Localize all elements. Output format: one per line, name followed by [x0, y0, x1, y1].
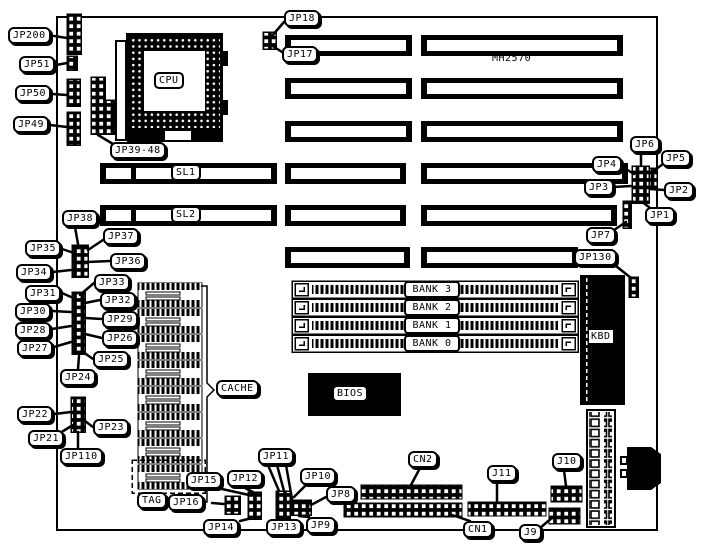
connector-j10 — [551, 486, 582, 502]
label-jp11: JP11 — [258, 448, 294, 465]
label-jp25: JP25 — [93, 351, 129, 368]
connector-cn2-upper — [361, 485, 462, 499]
isa-slot-row-1 — [285, 35, 623, 56]
label-jp17: JP17 — [282, 46, 318, 63]
label-jp50: JP50 — [15, 85, 51, 102]
motherboard-diagram: JP200JP51JP50JP49JP18JP17JP39-48MH2570CP… — [0, 0, 704, 555]
label-cn2: CN2 — [408, 451, 438, 468]
label-jp5: JP5 — [661, 150, 691, 167]
label-jp6: JP6 — [630, 136, 660, 153]
jumper-block-jp12-14 — [248, 492, 261, 519]
label-cache: CACHE — [216, 380, 259, 397]
label-jp7: JP7 — [586, 227, 616, 244]
label-jp35: JP35 — [25, 240, 61, 257]
label-amp: AMP — [192, 128, 212, 141]
cache-chip-column — [132, 283, 205, 493]
label-jp31: JP31 — [25, 285, 61, 302]
connector-j11 — [468, 502, 546, 516]
label-jp37: JP37 — [103, 228, 139, 245]
label-jp18: JP18 — [284, 10, 320, 27]
label-jp36: JP36 — [110, 253, 146, 270]
label-sl1: SL1 — [171, 164, 201, 181]
label-kbd: KBD — [589, 330, 613, 343]
label-jp13: JP13 — [266, 519, 302, 536]
label-jp23: JP23 — [93, 419, 129, 436]
connector-cn2-lower — [344, 503, 462, 517]
label-jp49: JP49 — [13, 116, 49, 133]
label-jp24: JP24 — [60, 369, 96, 386]
label-jp1: JP1 — [645, 207, 675, 224]
label-jp16: JP16 — [168, 494, 204, 511]
label-jp38: JP38 — [62, 210, 98, 227]
label-jp8: JP8 — [326, 486, 356, 503]
label-tag: TAG — [137, 492, 167, 509]
label-j10: J10 — [552, 453, 582, 470]
label-jp29: JP29 — [102, 311, 138, 328]
jumper-jp130 — [629, 277, 638, 297]
label-jp15: JP15 — [186, 472, 222, 489]
label-jp27: JP27 — [17, 340, 53, 357]
label-j11: J11 — [487, 465, 517, 482]
isa-slot-row-3 — [285, 121, 623, 142]
label-jp30: JP30 — [15, 303, 51, 320]
jumper-cluster-jp25-34 — [72, 292, 85, 354]
jumper-block-jp8-10 — [290, 500, 311, 515]
label-jp28: JP28 — [15, 322, 51, 339]
label-bank1: BANK 1 — [404, 317, 460, 334]
label-jp32: JP32 — [100, 292, 136, 309]
label-jp22: JP22 — [17, 406, 53, 423]
label-jp33: JP33 — [94, 274, 130, 291]
label-jp39-48: JP39-48 — [110, 142, 166, 159]
label-cn1: CN1 — [463, 521, 493, 538]
label-j9: J9 — [519, 524, 542, 541]
label-jp12: JP12 — [227, 470, 263, 487]
label-jp10: JP10 — [300, 468, 336, 485]
label-bank0: BANK 0 — [404, 335, 460, 352]
label-jp200: JP200 — [8, 27, 51, 44]
label-jp21: JP21 — [28, 430, 64, 447]
label-jp51: JP51 — [19, 56, 55, 73]
jumper-cluster-jp21-23-110 — [71, 397, 85, 432]
label-jp14: JP14 — [203, 519, 239, 536]
label-jp2: JP2 — [664, 182, 694, 199]
label-jp34: JP34 — [16, 264, 52, 281]
label-sl2: SL2 — [171, 206, 201, 223]
label-bank2: BANK 2 — [404, 299, 460, 316]
label-jp9: JP9 — [306, 517, 336, 534]
label-bios: BIOS — [332, 385, 368, 402]
label-jp4: JP4 — [592, 156, 622, 173]
power-connector — [587, 410, 615, 527]
label-jp130: JP130 — [574, 249, 617, 266]
jumper-block-jp15-16 — [225, 496, 240, 514]
isa-slot-row-6 — [285, 247, 578, 268]
left-edge-jumpers — [67, 14, 81, 145]
label-bank3: BANK 3 — [404, 281, 460, 298]
label-jp110: JP110 — [60, 448, 103, 465]
label-jp26: JP26 — [102, 330, 138, 347]
jumper-cluster-jp35-38 — [72, 245, 88, 277]
label-jp3: JP3 — [584, 179, 614, 196]
jumper-block-jp11-13 — [276, 491, 290, 520]
label-cpu: CPU — [154, 72, 184, 89]
isa-slot-row-2 — [285, 78, 623, 99]
label-mh2570: MH2570 — [492, 52, 531, 65]
